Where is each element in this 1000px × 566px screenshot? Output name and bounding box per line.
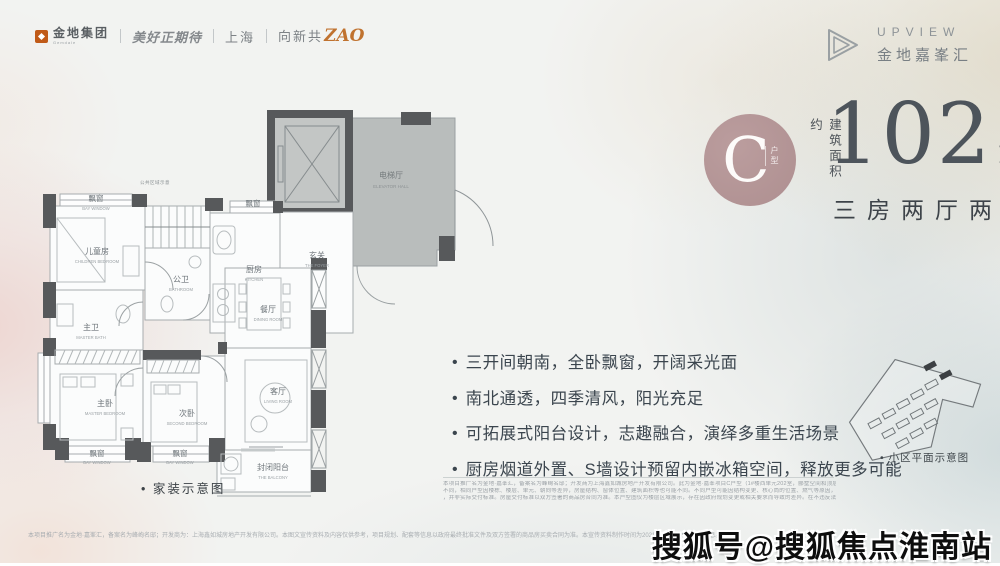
svg-text:封闭阳台: 封闭阳台: [257, 462, 289, 472]
unit-type-letter: C: [722, 129, 769, 191]
svg-text:BAY WINDOW: BAY WINDOW: [166, 460, 194, 465]
svg-text:THE BALCONY: THE BALCONY: [258, 475, 288, 480]
siteplan-caption: • 小区平面示意图: [880, 450, 969, 465]
brand-bar: 金地集团 Gemdale 美好正期待 上海 向新共 ZAO: [35, 24, 364, 48]
divider: [266, 29, 267, 43]
svg-text:主卫: 主卫: [83, 322, 99, 332]
feature-item: • 可拓展式阳台设计，志趣融合，演绎多重生活场景: [452, 423, 852, 459]
svg-text:ELEVATOR HALL: ELEVATOR HALL: [373, 184, 409, 189]
svg-text:BATHROOM: BATHROOM: [169, 287, 193, 292]
svg-text:BAY WINDOW: BAY WINDOW: [83, 460, 111, 465]
svg-text:MASTER BEDROOM: MASTER BEDROOM: [85, 411, 126, 416]
svg-text:飘窗: 飘窗: [89, 193, 104, 203]
area-value: 102 m 2: [826, 92, 1000, 176]
brand-slogan: 美好正期待: [132, 27, 202, 46]
floorplan-annotation: 公共区域示意: [140, 180, 170, 186]
svg-text:CHILDREN BEDROOM: CHILDREN BEDROOM: [75, 259, 120, 264]
svg-text:厨房: 厨房: [246, 264, 262, 274]
entry-door-arc: [455, 190, 493, 250]
svg-text:KITCHEN: KITCHEN: [245, 277, 263, 282]
svg-text:主卧: 主卧: [97, 398, 113, 408]
svg-text:THE FOYER: THE FOYER: [305, 263, 329, 268]
svg-text:电梯厅: 电梯厅: [379, 170, 403, 180]
gemdale-name: 金地集团: [53, 27, 109, 39]
divider: [120, 29, 121, 43]
floorplan-caption: • 家装示意图: [141, 478, 225, 497]
disclaimer-paragraph: 本项目推广名为金地·嘉峯汇，备案名为峰峋名邸；开发商为上海鑫如城房地产开发有限公…: [443, 481, 836, 501]
svg-text:餐厅: 餐厅: [260, 305, 276, 314]
siteplan-drawing: [840, 352, 992, 464]
disclaimer-bottom-line: 本项目推广名为金地·嘉峯汇，备案名为峰峋名邸；开发商为：上海鑫如城房地产开发有限…: [28, 530, 740, 539]
svg-text:次卧: 次卧: [179, 408, 195, 418]
svg-text:LIVING ROOM: LIVING ROOM: [264, 399, 292, 404]
feature-list: • 三开间朝南，全卧飘窗，开阔采光面 • 南北通透，四季清风，阳光充足 • 可拓…: [452, 352, 852, 494]
svg-text:玄关: 玄关: [309, 250, 325, 260]
svg-text:客厅: 客厅: [270, 386, 286, 396]
svg-text:SECOND BEDROOM: SECOND BEDROOM: [167, 421, 208, 426]
gemdale-logo-icon: [35, 30, 48, 43]
svg-text:MASTER BATH: MASTER BATH: [76, 335, 105, 340]
upview-name-en: UPVIEW: [877, 25, 972, 39]
svg-text:飘窗: 飘窗: [246, 198, 261, 208]
brand-city: 上海: [225, 27, 255, 46]
gemdale-name-en: Gemdale: [53, 41, 109, 45]
feature-item: • 三开间朝南，全卧飘窗，开阔采光面: [452, 352, 852, 388]
svg-text:公卫: 公卫: [173, 275, 189, 284]
svg-text:飘窗: 飘窗: [90, 448, 105, 458]
svg-text:DINING ROOM: DINING ROOM: [254, 317, 283, 322]
sohu-watermark: 搜狐号@搜狐焦点淮南站: [652, 522, 992, 566]
brand-zao: 向新共 ZAO: [278, 26, 364, 46]
separator-line: [443, 477, 834, 478]
feature-item: • 南北通透，四季清风，阳光充足: [452, 388, 852, 424]
siteplan-boundary: [850, 360, 981, 461]
gemdale-logo: 金地集团 Gemdale: [35, 27, 109, 45]
unit-type-label: 户型: [765, 146, 780, 166]
upview-name-cn: 金地嘉峯汇: [877, 44, 972, 65]
svg-text:BAY WINDOW: BAY WINDOW: [82, 206, 110, 211]
upview-brand: UPVIEW 金地嘉峯汇: [823, 22, 972, 68]
svg-text:儿童房: 儿童房: [85, 246, 109, 256]
unit-layout: 三房两厅两卫: [833, 191, 1000, 225]
divider: [213, 29, 214, 43]
zao-wordmark: ZAO: [324, 26, 364, 46]
upview-triangle-icon: [823, 22, 865, 68]
floorplan-drawing: 电梯厅 ELEVATOR HALL: [35, 98, 495, 502]
poster: 金地集团 Gemdale 美好正期待 上海 向新共 ZAO UPVIEW 金地嘉…: [0, 0, 1000, 563]
area-number: 102: [826, 92, 992, 176]
unit-type-badge: C 户型: [704, 114, 796, 206]
svg-text:飘窗: 飘窗: [173, 448, 188, 458]
